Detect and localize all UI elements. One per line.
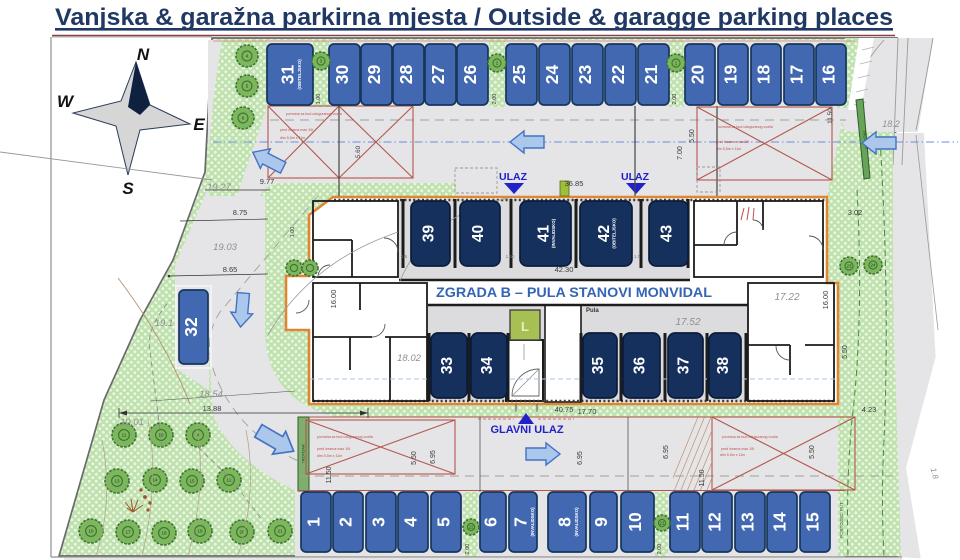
svg-text:5: 5 <box>434 517 454 527</box>
svg-text:18.54: 18.54 <box>199 389 223 400</box>
svg-text:36: 36 <box>632 357 649 375</box>
svg-text:5.50: 5.50 <box>411 451 418 465</box>
svg-text:12: 12 <box>226 478 232 483</box>
svg-text:15: 15 <box>189 479 195 484</box>
svg-text:povrsina za bud uduguranog voz: povrsina za bud uduguranog vozila <box>717 125 773 129</box>
svg-text:1.5: 1.5 <box>634 254 641 259</box>
svg-text:42.30: 42.30 <box>555 265 574 274</box>
svg-text:dim 5,5m x 11m: dim 5,5m x 11m <box>317 454 342 458</box>
svg-text:41: 41 <box>536 225 553 243</box>
svg-text:14: 14 <box>770 512 790 532</box>
svg-text:11: 11 <box>122 433 127 438</box>
svg-text:dim 5,5m x 11m: dim 5,5m x 11m <box>716 147 741 151</box>
svg-text:8.65: 8.65 <box>223 265 238 274</box>
svg-text:18: 18 <box>161 531 167 536</box>
svg-text:27: 27 <box>428 65 448 84</box>
svg-text:20: 20 <box>688 65 708 85</box>
svg-text:34: 34 <box>479 357 496 375</box>
svg-text:pred hearna max 10t: pred hearna max 10t <box>317 447 350 451</box>
svg-text:6.95: 6.95 <box>663 445 670 459</box>
svg-text:TROTOAR: TROTOAR <box>301 444 306 464</box>
svg-text:33: 33 <box>439 357 456 375</box>
svg-text:L: L <box>521 319 529 334</box>
svg-text:pred hearna max 10t: pred hearna max 10t <box>721 447 754 451</box>
svg-text:17.70: 17.70 <box>578 407 597 416</box>
svg-text:19.03: 19.03 <box>213 242 237 253</box>
svg-text:16: 16 <box>88 529 94 534</box>
svg-text:19.1: 19.1 <box>155 318 174 329</box>
svg-text:11.50: 11.50 <box>326 466 333 483</box>
svg-text:17: 17 <box>125 530 131 535</box>
svg-text:17.22: 17.22 <box>774 292 799 303</box>
svg-text:1: 1 <box>304 517 324 527</box>
svg-text:1.00: 1.00 <box>290 227 296 238</box>
svg-text:2.00: 2.00 <box>657 544 663 555</box>
svg-text:23: 23 <box>846 264 852 269</box>
svg-text:16.00: 16.00 <box>821 291 830 310</box>
svg-text:10: 10 <box>158 433 164 438</box>
svg-text:15: 15 <box>803 512 823 532</box>
svg-text:14: 14 <box>152 478 158 483</box>
svg-text:(INVALIDSKO): (INVALIDSKO) <box>551 218 556 248</box>
svg-text:19: 19 <box>721 65 741 85</box>
svg-text:21: 21 <box>641 65 661 85</box>
svg-text:31: 31 <box>278 65 298 85</box>
svg-text:1.00: 1.00 <box>316 94 322 105</box>
svg-text:29: 29 <box>364 65 384 85</box>
svg-text:40: 40 <box>470 225 487 242</box>
svg-text:4.23: 4.23 <box>862 405 877 414</box>
svg-text:S: S <box>122 179 134 198</box>
svg-text:11.50: 11.50 <box>699 469 706 486</box>
svg-text:5.50: 5.50 <box>842 345 849 359</box>
svg-text:21: 21 <box>659 521 665 526</box>
svg-text:16.00: 16.00 <box>329 290 338 309</box>
svg-text:38: 38 <box>715 357 732 375</box>
svg-text:7.00: 7.00 <box>677 146 684 160</box>
svg-text:E: E <box>193 115 205 134</box>
svg-text:5.50: 5.50 <box>689 129 696 143</box>
svg-text:W: W <box>57 92 75 111</box>
svg-text:17: 17 <box>787 65 807 84</box>
svg-text:19: 19 <box>197 529 203 534</box>
svg-text:pred hearna max 10t: pred hearna max 10t <box>280 128 313 132</box>
svg-text:13: 13 <box>738 512 758 532</box>
svg-text:8: 8 <box>555 517 575 527</box>
svg-text:23: 23 <box>575 65 595 85</box>
svg-text:povrsina za bud uduguranog voz: povrsina za bud uduguranog vozila <box>317 435 373 439</box>
svg-text:(OBITELJSKO): (OBITELJSKO) <box>612 218 617 249</box>
svg-text:11.50: 11.50 <box>827 108 834 124</box>
svg-text:6: 6 <box>481 517 501 527</box>
svg-text:5.50: 5.50 <box>809 445 816 459</box>
svg-text:16: 16 <box>819 65 839 85</box>
svg-text:22: 22 <box>468 525 474 530</box>
svg-text:GLAVNI ULAZ: GLAVNI ULAZ <box>490 424 563 436</box>
svg-text:26: 26 <box>460 65 480 85</box>
svg-text:18.2: 18.2 <box>882 119 900 129</box>
svg-text:8.75: 8.75 <box>233 208 248 217</box>
svg-text:24: 24 <box>870 263 876 268</box>
svg-text:21: 21 <box>277 529 283 534</box>
svg-text:39: 39 <box>421 225 438 243</box>
svg-text:5.60: 5.60 <box>355 145 362 158</box>
svg-text:6.95: 6.95 <box>577 451 584 465</box>
svg-text:18.02: 18.02 <box>397 353 421 364</box>
svg-text:43: 43 <box>659 225 676 243</box>
svg-text:ZGRADA B – PULA STANOVI MONVID: ZGRADA B – PULA STANOVI MONVIDAL <box>436 284 712 300</box>
svg-text:13: 13 <box>114 479 120 484</box>
svg-text:2: 2 <box>336 517 356 527</box>
svg-text:11: 11 <box>673 512 693 531</box>
svg-text:13.88: 13.88 <box>203 404 222 413</box>
svg-text:dim 5,5m x 11m: dim 5,5m x 11m <box>720 453 745 457</box>
svg-text:(INVALIDSKO): (INVALIDSKO) <box>574 507 579 537</box>
svg-text:19.01: 19.01 <box>120 417 144 428</box>
svg-text:Vanjska & garažna parkirna mje: Vanjska & garažna parkirna mjesta / Outs… <box>55 4 893 31</box>
svg-text:37: 37 <box>676 357 693 374</box>
svg-text:6.95: 6.95 <box>430 450 437 464</box>
svg-text:3.02: 3.02 <box>848 208 863 217</box>
svg-text:povrsina za bud uduguranog voz: povrsina za bud uduguranog vozila <box>722 435 778 439</box>
svg-text:30: 30 <box>332 65 352 85</box>
svg-text:12: 12 <box>705 512 725 532</box>
svg-text:28: 28 <box>396 65 416 85</box>
svg-text:6.5: 6.5 <box>401 254 408 259</box>
svg-text:ULAZ: ULAZ <box>499 171 528 183</box>
svg-text:17.52: 17.52 <box>675 317 700 328</box>
svg-text:1.40: 1.40 <box>506 254 515 259</box>
svg-text:3: 3 <box>369 517 389 527</box>
svg-text:2.00: 2.00 <box>492 94 498 105</box>
svg-text:9.77: 9.77 <box>260 177 275 186</box>
svg-text:9: 9 <box>591 517 611 527</box>
svg-text:32: 32 <box>181 317 201 337</box>
svg-text:4: 4 <box>401 517 421 527</box>
svg-text:36.85: 36.85 <box>565 179 584 188</box>
svg-text:POSTOJECI PUT: POSTOJECI PUT <box>839 502 844 538</box>
svg-text:Pula: Pula <box>586 308 599 314</box>
svg-text:(INVALIDSKO): (INVALIDSKO) <box>530 507 535 537</box>
svg-text:dim 5,5m x 11m: dim 5,5m x 11m <box>280 136 305 140</box>
svg-text:7: 7 <box>511 517 531 527</box>
svg-text:10: 10 <box>625 512 645 532</box>
svg-text:N: N <box>137 45 150 64</box>
svg-text:18: 18 <box>754 65 774 85</box>
svg-text:22: 22 <box>608 65 628 85</box>
svg-text:2.00: 2.00 <box>672 94 678 105</box>
svg-text:19.27: 19.27 <box>207 182 231 193</box>
svg-text:42: 42 <box>596 225 613 242</box>
svg-text:(OBITELJSKO): (OBITELJSKO) <box>297 59 302 90</box>
svg-text:24: 24 <box>542 65 562 85</box>
svg-text:25: 25 <box>509 65 529 85</box>
svg-text:pred hearna max 10t: pred hearna max 10t <box>716 140 749 144</box>
svg-text:povrsina za bud uduguranog voz: povrsina za bud uduguranog vozila <box>286 112 342 116</box>
svg-text:40.75: 40.75 <box>555 405 574 414</box>
svg-text:2.00: 2.00 <box>465 544 471 555</box>
svg-text:35: 35 <box>590 357 607 375</box>
